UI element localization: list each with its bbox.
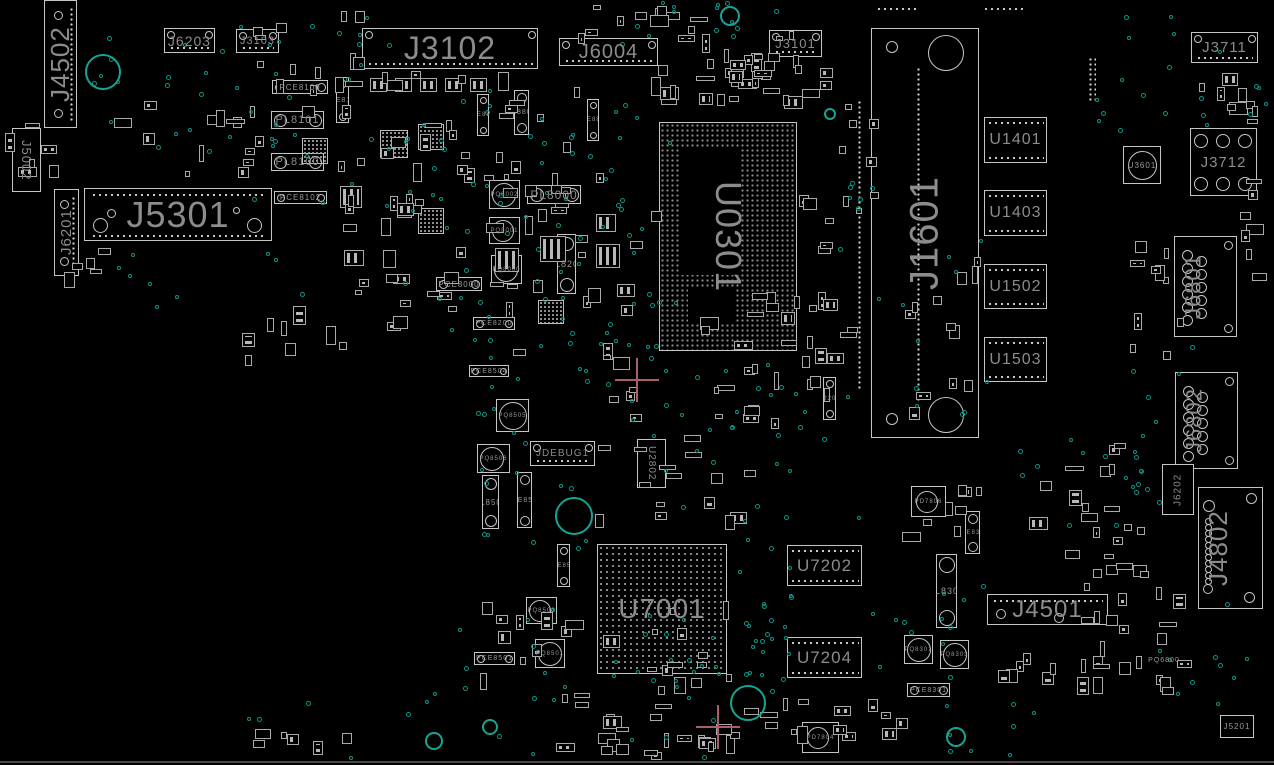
smd-part xyxy=(881,712,891,719)
via-ring xyxy=(702,755,707,760)
via-ring xyxy=(756,386,761,391)
smd-part xyxy=(1124,524,1132,531)
board-edge-line xyxy=(0,761,1274,763)
smd-part xyxy=(498,631,511,644)
pin-circle xyxy=(107,209,116,218)
via-ring xyxy=(789,595,794,600)
teal-ring xyxy=(730,685,766,721)
via-ring xyxy=(627,343,631,347)
pin-dot-column xyxy=(857,100,862,390)
smd-part xyxy=(866,157,877,167)
via-ring xyxy=(668,141,672,145)
via-ring xyxy=(450,328,454,332)
smd-part xyxy=(954,526,961,537)
smd-part xyxy=(1134,313,1142,330)
component-J5201[interactable]: J5201 xyxy=(1220,715,1254,738)
smd-part xyxy=(355,290,362,295)
component-J6202[interactable]: J6202 xyxy=(1162,464,1194,515)
dsub-pin xyxy=(1183,438,1194,449)
smd-part xyxy=(565,620,584,630)
smd-part xyxy=(338,161,345,172)
dsub-pin xyxy=(1197,431,1208,442)
via-ring xyxy=(1199,96,1204,101)
dsub-pin xyxy=(1182,315,1193,326)
via-ring xyxy=(731,34,736,39)
smd-part xyxy=(789,31,794,40)
smd-part xyxy=(723,601,729,620)
pin-circle xyxy=(60,257,69,266)
via-ring xyxy=(531,752,535,756)
pin-circle xyxy=(480,97,487,104)
via-ring xyxy=(1011,702,1016,707)
via-ring xyxy=(1011,724,1016,729)
smd-pads xyxy=(680,738,689,739)
pin-circle xyxy=(812,33,820,41)
smd-pads xyxy=(952,381,954,386)
via-ring xyxy=(1124,15,1129,20)
via-ring xyxy=(578,367,582,371)
via-ring xyxy=(620,42,625,47)
smd-part xyxy=(644,750,658,756)
via-ring xyxy=(439,138,444,143)
inductor-circle xyxy=(943,643,967,667)
smd-part xyxy=(766,303,779,312)
smd-part xyxy=(670,608,676,615)
smd-part xyxy=(574,693,590,698)
smd-pads xyxy=(147,104,154,107)
component-PCE8200[interactable]: PCE8200 xyxy=(473,317,515,330)
smd-pads xyxy=(1251,193,1255,197)
via-ring xyxy=(485,110,490,115)
package-circle xyxy=(916,491,938,513)
via-ring xyxy=(877,297,881,301)
smd-part xyxy=(666,473,682,479)
smd-part xyxy=(456,247,466,258)
component-J6203[interactable]: J6203 xyxy=(164,28,215,53)
via-ring xyxy=(618,136,622,140)
component-PCE8504[interactable]: PCE8504 xyxy=(469,365,509,377)
jack-hole xyxy=(1194,134,1208,148)
smd-part xyxy=(400,300,411,307)
pin-circle xyxy=(93,218,108,233)
pin-dot-row xyxy=(790,548,859,554)
component-U1503[interactable]: U1503 xyxy=(984,337,1047,382)
via-ring xyxy=(606,382,611,387)
pin-circle xyxy=(1225,456,1234,465)
smd-part xyxy=(747,312,764,317)
smd-pads xyxy=(620,19,621,23)
pin-circle xyxy=(1054,613,1064,623)
via-ring xyxy=(486,533,490,537)
smd-part xyxy=(1222,73,1238,86)
smd-part xyxy=(1118,593,1127,606)
smd-part xyxy=(656,502,665,507)
smd-part xyxy=(415,199,424,206)
via-ring xyxy=(761,650,765,654)
via-ring xyxy=(505,231,510,236)
pin-dot-row xyxy=(987,267,1044,273)
smd-part xyxy=(798,699,809,705)
pin-dot-row xyxy=(1196,55,1253,61)
component-J3102[interactable]: J3102 xyxy=(362,28,538,69)
smd-part xyxy=(359,279,369,287)
via-ring xyxy=(787,652,791,656)
smd-part xyxy=(496,152,503,163)
smd-part xyxy=(90,269,102,274)
smd-part xyxy=(1109,464,1115,475)
component-PCE8102[interactable]: PCE8102 xyxy=(274,191,327,204)
dsub-pin xyxy=(1183,412,1194,423)
qfn-part xyxy=(538,300,564,324)
pin-circle xyxy=(485,515,497,527)
smd-part xyxy=(457,165,468,175)
via-ring xyxy=(609,168,614,173)
via-ring xyxy=(577,262,581,266)
component-PCE8501[interactable]: PCE8501 xyxy=(474,652,515,665)
pin-circle xyxy=(480,127,487,134)
smd-part xyxy=(1173,594,1186,609)
dsub-pin xyxy=(1182,302,1193,313)
smd-part xyxy=(1100,641,1105,657)
via-ring xyxy=(1176,692,1180,696)
component-J5002[interactable]: J5002 xyxy=(12,128,41,192)
smd-part xyxy=(803,198,817,210)
smd-part xyxy=(5,133,15,152)
via-ring xyxy=(1232,676,1236,680)
via-ring xyxy=(652,434,656,438)
via-ring xyxy=(526,618,530,622)
via-ring xyxy=(1124,476,1128,480)
component-J3712[interactable]: J3712 xyxy=(1190,128,1257,196)
smd-part xyxy=(276,79,284,94)
smd-part xyxy=(448,306,457,312)
pin-circle xyxy=(910,686,919,695)
via-ring xyxy=(445,226,449,230)
via-ring xyxy=(746,538,750,542)
smd-part xyxy=(691,678,702,688)
smd-part xyxy=(717,385,735,391)
via-ring xyxy=(252,197,257,202)
smd-pads xyxy=(885,731,894,737)
via-ring xyxy=(1146,395,1151,400)
smd-pads xyxy=(8,136,12,149)
pin-dot-row xyxy=(987,193,1044,199)
smd-part xyxy=(1094,611,1100,624)
via-ring xyxy=(1257,86,1261,90)
pin-dot-row xyxy=(983,6,1023,14)
via-ring xyxy=(783,625,787,629)
smd-part xyxy=(18,167,37,177)
via-ring xyxy=(156,145,161,150)
via-ring xyxy=(188,128,192,132)
via-ring xyxy=(614,339,618,343)
smd-part xyxy=(1163,351,1171,360)
smd-part xyxy=(702,34,710,53)
pin-dot-row xyxy=(790,578,859,584)
pin-circle xyxy=(528,31,536,39)
via-ring xyxy=(1133,450,1137,454)
smd-part xyxy=(1130,260,1145,267)
pin-circle xyxy=(54,11,63,20)
smd-pads xyxy=(746,417,756,420)
pin-circle xyxy=(533,444,541,452)
via-ring xyxy=(700,664,704,668)
component-U0301[interactable]: U0301 xyxy=(659,122,797,351)
smd-part xyxy=(216,110,225,127)
via-ring xyxy=(563,685,567,689)
pin-dot-column xyxy=(71,196,76,269)
smd-part xyxy=(1081,513,1098,522)
via-ring xyxy=(1139,469,1144,474)
via-ring xyxy=(523,441,528,446)
pin-circle xyxy=(520,475,530,485)
smd-part xyxy=(313,741,323,755)
via-ring xyxy=(735,410,739,414)
dsub-pin xyxy=(1196,282,1207,293)
smd-part xyxy=(343,224,357,232)
via-ring xyxy=(1154,420,1158,424)
via-ring xyxy=(1120,78,1124,82)
component-PCE8506[interactable]: PCE8506 xyxy=(557,544,570,587)
pin-circle xyxy=(1246,493,1257,504)
smd-part xyxy=(744,470,756,477)
via-ring xyxy=(894,618,898,622)
inductor-circle xyxy=(499,402,527,430)
smd-part xyxy=(551,207,567,214)
smd-part xyxy=(1248,190,1258,200)
teal-ring xyxy=(482,719,498,735)
dsub-pin xyxy=(1182,263,1193,274)
via-ring xyxy=(1101,111,1106,116)
smd-part xyxy=(734,341,753,350)
smd-pads xyxy=(473,81,484,89)
component-PCE8301[interactable]: PCE8301 xyxy=(907,683,950,697)
smd-pads xyxy=(245,336,252,344)
via-ring xyxy=(403,281,408,286)
via-ring xyxy=(422,123,426,127)
via-ring xyxy=(1190,345,1195,350)
smd-part xyxy=(596,244,620,268)
via-ring xyxy=(274,72,278,76)
via-ring xyxy=(601,225,605,229)
via-ring xyxy=(310,24,315,29)
smd-part xyxy=(711,473,723,484)
smd-part xyxy=(1093,527,1100,538)
smd-part xyxy=(1199,83,1205,92)
pin-circle xyxy=(1203,500,1215,512)
component-J4802[interactable]: J4802 xyxy=(1198,487,1263,609)
pin-circle xyxy=(590,132,597,139)
smd-pads xyxy=(241,170,246,175)
via-ring xyxy=(524,215,528,219)
smd-part xyxy=(413,163,422,182)
smd-pads xyxy=(313,88,314,93)
pin-dot-column xyxy=(916,67,921,401)
via-ring xyxy=(695,375,700,380)
smd-part xyxy=(882,728,897,740)
via-ring xyxy=(490,385,494,389)
smd-pads xyxy=(362,282,366,284)
smd-pads xyxy=(21,170,34,174)
via-ring xyxy=(1018,449,1023,454)
component-PCE8502[interactable]: PCE8502 xyxy=(517,472,532,528)
via-ring xyxy=(794,392,798,396)
via-ring xyxy=(266,252,270,256)
via-ring xyxy=(632,251,636,255)
smd-part xyxy=(916,392,931,400)
smd-pads xyxy=(1122,628,1126,631)
component-J5301[interactable]: J5301 xyxy=(84,188,272,241)
smd-part xyxy=(1247,119,1258,124)
component-J4502[interactable]: J4502 xyxy=(44,0,77,128)
pin-circle xyxy=(1244,592,1255,603)
smd-pads xyxy=(733,63,743,67)
via-ring xyxy=(664,369,668,373)
smd-part xyxy=(470,78,487,92)
component-PD7806[interactable]: PD7806 xyxy=(911,486,946,517)
smd-pads xyxy=(1176,597,1183,606)
via-ring xyxy=(769,618,774,623)
smd-part xyxy=(1119,662,1131,675)
via-ring xyxy=(612,674,616,678)
smd-pads xyxy=(1019,664,1021,669)
component-JDEBUG1[interactable]: JDEBUG1 xyxy=(530,441,595,466)
via-ring xyxy=(682,618,686,622)
smd-part xyxy=(783,698,788,711)
component-PL8301[interactable]: PL8301 xyxy=(936,554,957,628)
pin-dot-row xyxy=(790,670,859,676)
component-label-J6202: J6202 xyxy=(1163,465,1193,514)
pin-circle xyxy=(476,320,484,328)
pin-circle xyxy=(590,102,597,109)
pin-circle xyxy=(560,547,568,555)
smd-part xyxy=(461,152,470,159)
via-ring xyxy=(571,133,575,137)
smd-pads xyxy=(871,702,875,709)
pin-dot-row xyxy=(91,233,265,239)
component-PCE8801[interactable]: PCE8801 xyxy=(477,94,489,136)
via-ring xyxy=(559,484,563,488)
smd-pads xyxy=(624,308,630,313)
smd-pads xyxy=(559,746,572,749)
smd-part xyxy=(355,11,365,23)
smd-pads xyxy=(499,618,505,621)
via-ring xyxy=(803,410,807,414)
pin-circle xyxy=(826,380,834,388)
via-ring xyxy=(247,717,251,721)
smd-part xyxy=(670,85,676,99)
via-ring xyxy=(431,193,435,197)
component-U7204[interactable]: U7204 xyxy=(787,637,862,678)
via-ring xyxy=(1008,753,1012,757)
smd-part xyxy=(425,123,442,128)
pin-circle xyxy=(517,123,527,133)
smd-part xyxy=(701,326,710,335)
via-ring xyxy=(635,24,640,29)
component-J6004[interactable]: J6004 xyxy=(559,38,658,66)
via-ring xyxy=(1216,702,1220,706)
smd-part xyxy=(420,134,431,151)
via-ring xyxy=(387,43,392,48)
smd-part xyxy=(1246,249,1252,260)
pin-circle xyxy=(886,413,898,425)
via-ring xyxy=(588,154,593,159)
smd-pads xyxy=(823,245,830,246)
via-ring xyxy=(605,331,609,335)
via-ring xyxy=(174,132,178,136)
component-U3601[interactable]: U3601 xyxy=(1123,146,1161,184)
smd-part xyxy=(562,694,568,703)
via-ring xyxy=(871,612,875,616)
smd-pads xyxy=(514,164,518,171)
pin-circle xyxy=(60,200,69,209)
via-ring xyxy=(948,749,953,754)
smd-pads xyxy=(459,250,463,255)
teal-ring xyxy=(85,54,121,90)
teal-ring xyxy=(720,6,740,26)
component-U1502[interactable]: U1502 xyxy=(984,264,1047,309)
component-U7202[interactable]: U7202 xyxy=(787,545,862,586)
dsub-pin xyxy=(1182,289,1193,300)
smd-part xyxy=(486,223,504,233)
smd-part xyxy=(609,396,619,403)
via-ring xyxy=(765,632,770,637)
smd-pads xyxy=(747,58,750,62)
component-J1601[interactable]: J1601 xyxy=(871,28,979,438)
pin-circle xyxy=(505,320,513,328)
dsub-pin xyxy=(1182,276,1193,287)
smd-part xyxy=(302,106,315,118)
smd-part xyxy=(650,15,669,27)
pin-circle xyxy=(477,655,485,663)
smd-part xyxy=(955,506,967,515)
dsub-pin xyxy=(1197,405,1208,416)
smd-part xyxy=(617,16,624,26)
via-ring xyxy=(1168,658,1172,662)
smd-part xyxy=(797,726,808,744)
smd-pads xyxy=(414,74,418,76)
smd-part xyxy=(1093,569,1102,578)
component-PCE8802[interactable]: PCE8802 xyxy=(587,99,599,141)
smd-pads xyxy=(1121,596,1124,603)
via-ring xyxy=(948,675,953,680)
component-PQ8505[interactable]: PQ8505 xyxy=(496,399,529,432)
component-U1403[interactable]: U1403 xyxy=(984,190,1047,236)
via-ring xyxy=(540,117,544,121)
component-PL8101[interactable]: PL8101 xyxy=(271,111,324,129)
smd-pads xyxy=(757,73,769,74)
via-ring xyxy=(442,147,447,152)
via-ring xyxy=(271,144,275,148)
smd-part xyxy=(310,85,317,96)
via-ring xyxy=(406,712,411,717)
via-ring xyxy=(620,198,625,203)
smd-pads xyxy=(629,394,632,398)
component-PQ8301[interactable]: PQ8301 xyxy=(904,635,933,664)
component-U1401[interactable]: U1401 xyxy=(984,117,1047,163)
component-J3711[interactable]: J3711 xyxy=(1191,32,1258,63)
smd-pads xyxy=(400,206,411,213)
smd-part xyxy=(730,732,740,739)
via-ring xyxy=(647,292,652,297)
smd-part xyxy=(143,133,155,145)
smd-part xyxy=(243,159,254,166)
via-ring xyxy=(850,181,855,186)
smd-part xyxy=(588,288,601,303)
smd-part xyxy=(574,87,580,98)
component-PCE8304[interactable]: PCE8304 xyxy=(965,511,980,554)
component-J6802[interactable]: J6802 xyxy=(1175,372,1238,469)
